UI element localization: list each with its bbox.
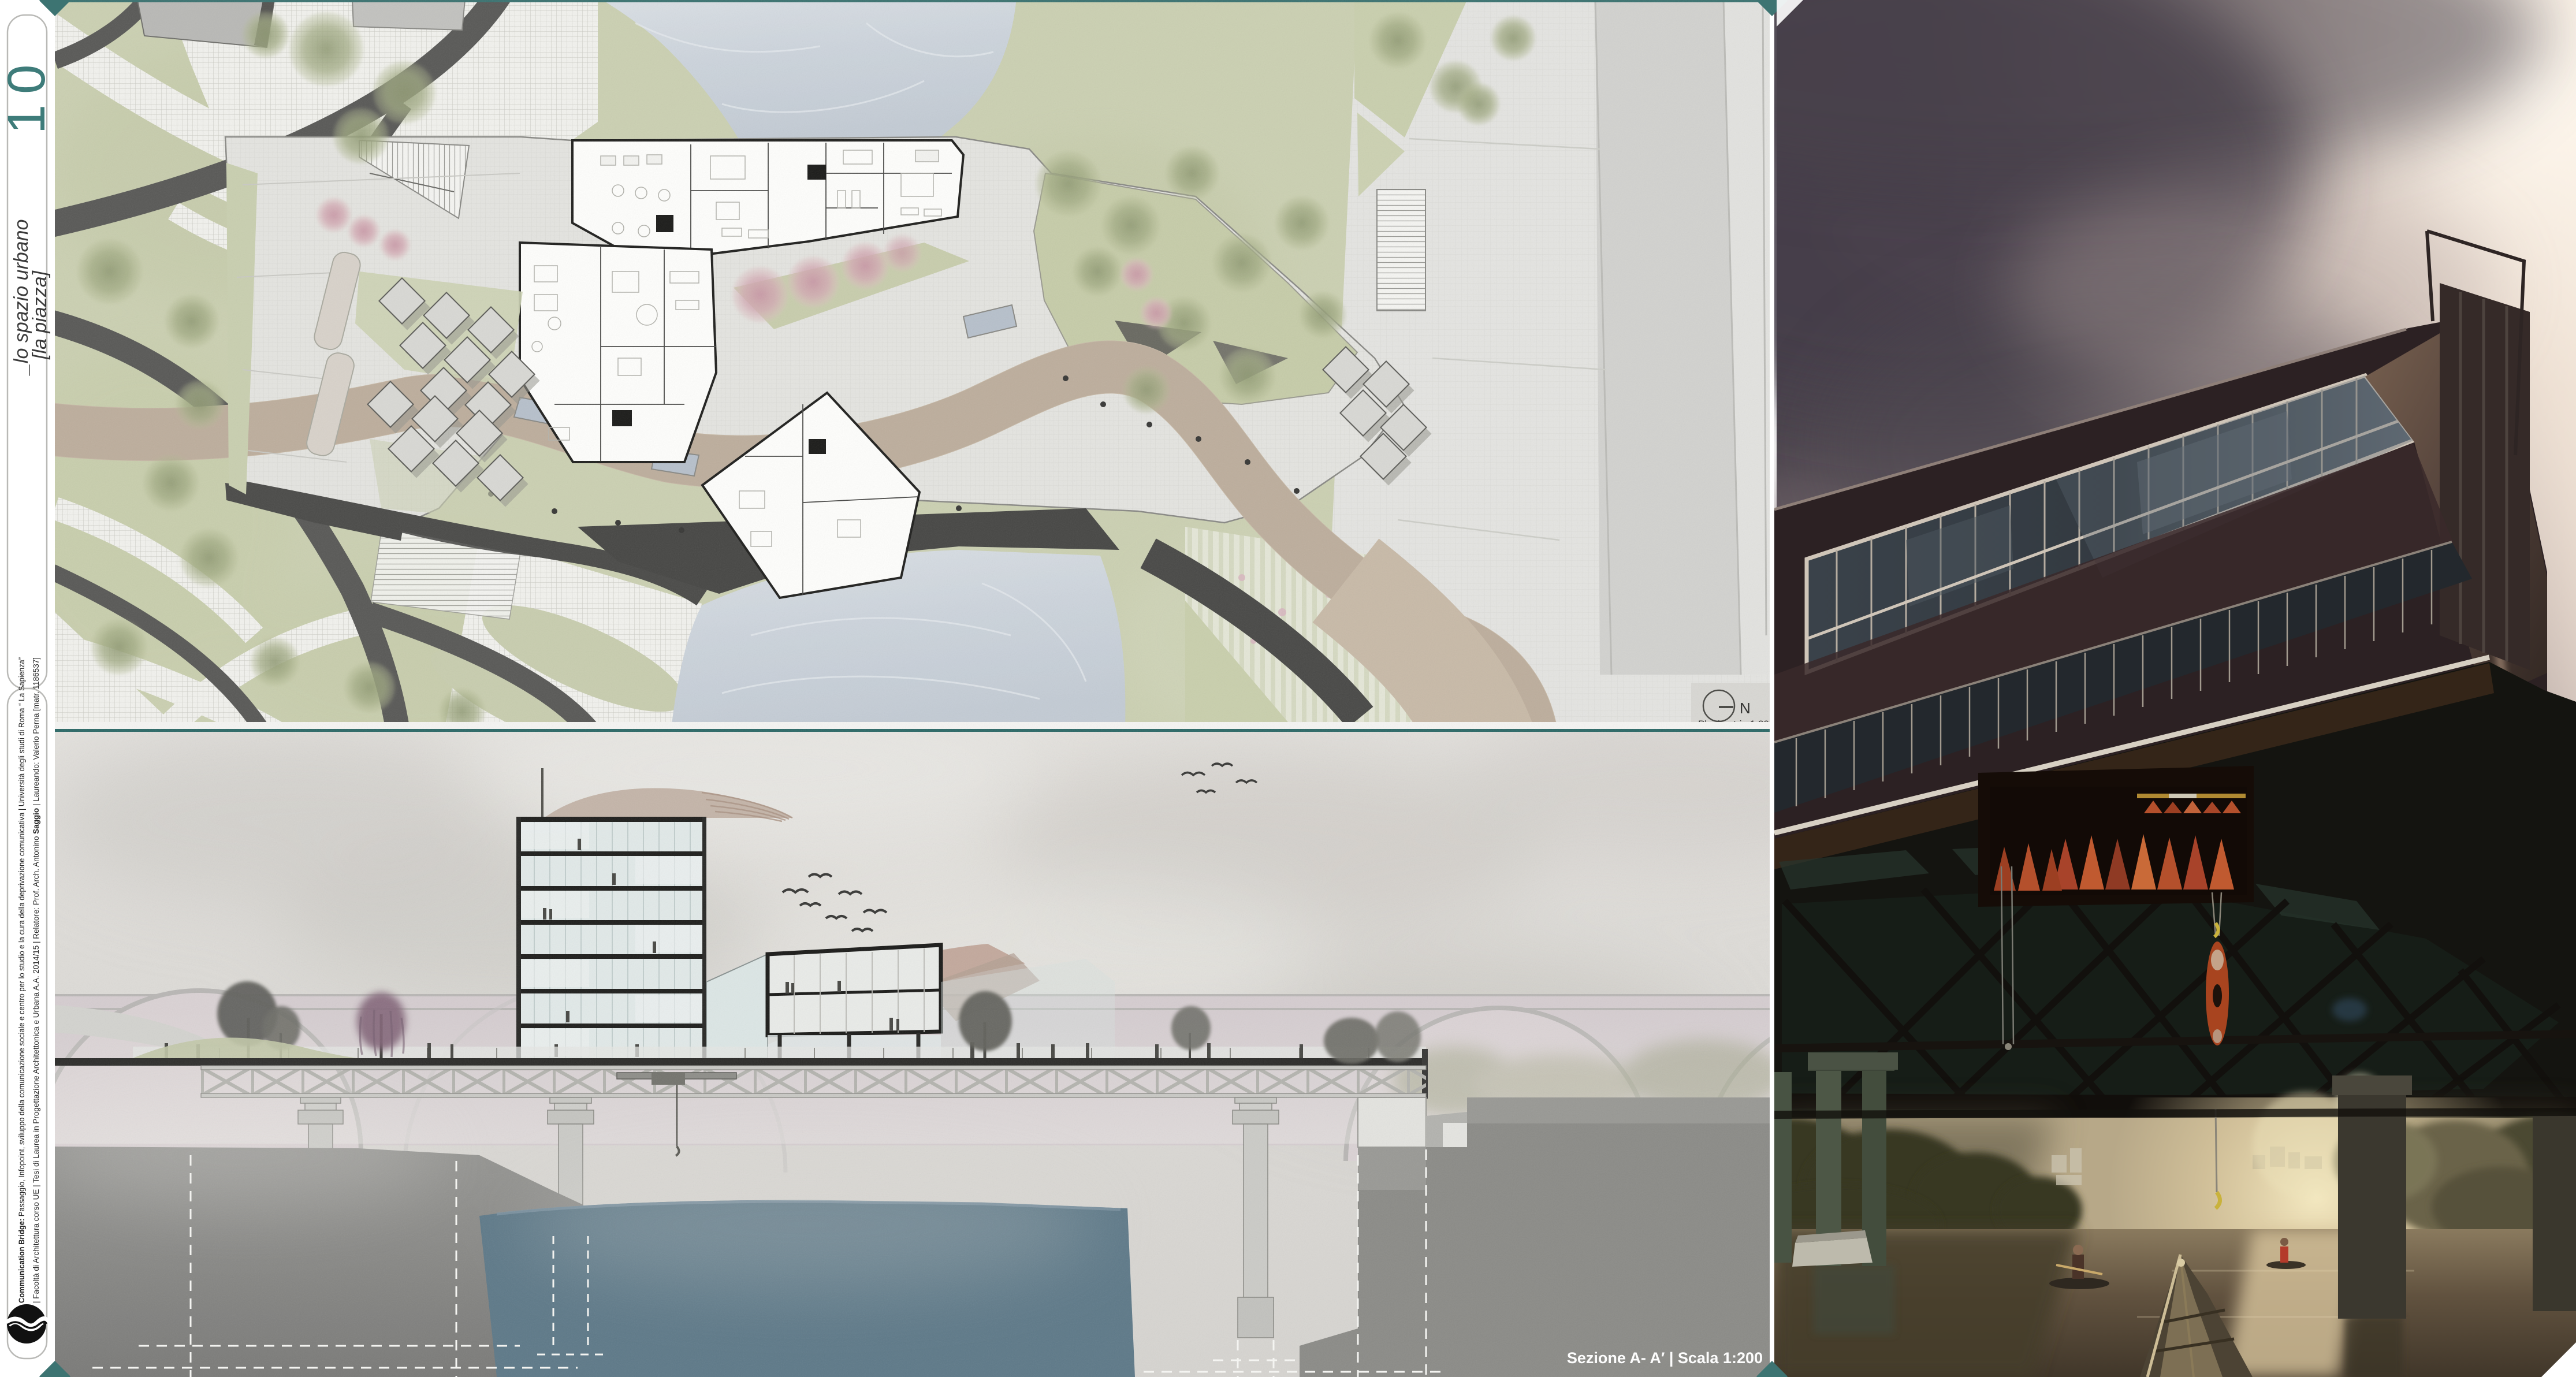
svg-text:[la piazza]: [la piazza]: [29, 270, 51, 360]
svg-text:| Facoltà di Architettura cors: | Facoltà di Architettura corso UE | Tes…: [32, 657, 40, 1303]
svg-text:Communication Bridge: Passagg: Communication Bridge: Passaggio, Infopoi…: [17, 657, 26, 1303]
svg-text:10: 10: [0, 54, 56, 134]
